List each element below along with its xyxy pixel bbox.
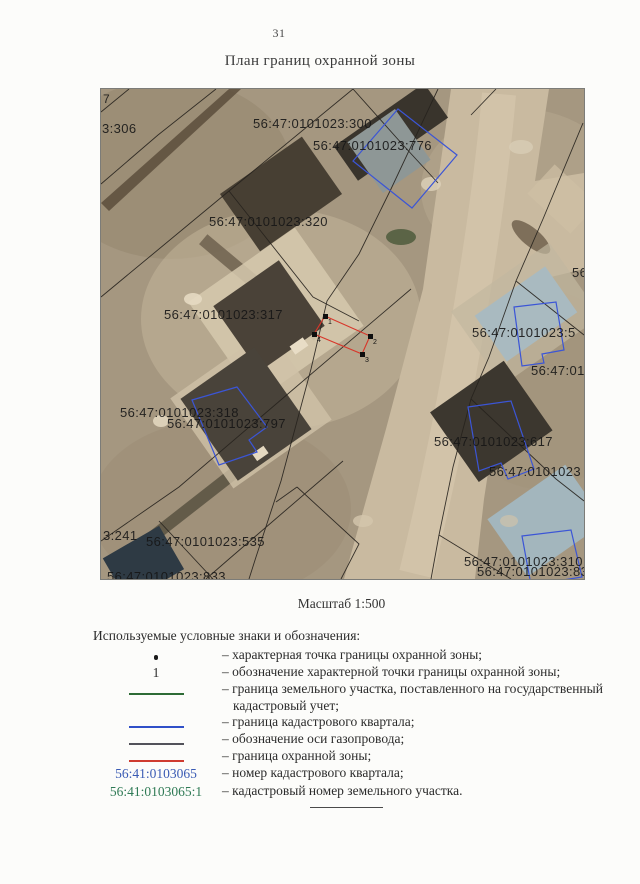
legend-row: – граница земельного участка, поставленн… [90, 681, 620, 714]
map-label: 56:47:0101023:833 [107, 570, 226, 580]
map-label: 3:306 [102, 122, 137, 135]
map-label: 56:47:0101023:617 [434, 435, 553, 448]
map-label: 56:47:01 [531, 364, 585, 377]
map-label: 56:47:0101023:320 [209, 215, 328, 228]
map-label: 56:47:0101023 [489, 465, 581, 478]
map-label: 56:47:0101023:5 [472, 326, 576, 339]
legend-cadastral-quarter-number: 56:41:0103065 [115, 766, 197, 783]
boundary-point-marker [368, 334, 373, 339]
legend-row-text: – кадастровый номер земельного участка. [222, 783, 620, 800]
map-image: 73:30656:47:0101023:30056:47:0101023:776… [100, 88, 585, 580]
map-label: 56:47:0101023:300 [253, 117, 372, 130]
legend-row: 56:41:0103065:1 – кадастровый номер земе… [90, 783, 620, 801]
map-label-layer: 73:30656:47:0101023:30056:47:0101023:776… [101, 89, 584, 579]
legend-row-text: – граница земельного участка, поставленн… [222, 681, 620, 714]
legend-row: – характерная точка границы охранной зон… [90, 647, 620, 664]
page-number: 31 [0, 26, 558, 41]
legend-row: – граница кадастрового квартала; [90, 714, 620, 731]
legend-row-text: – граница кадастрового квартала; [222, 714, 620, 731]
map-label: 56:47:0101023:317 [164, 308, 283, 321]
legend-cadastral-parcel-number: 56:41:0103065:1 [110, 784, 202, 801]
map-label: 56:47:0101023:776 [313, 139, 432, 152]
legend-row-text: – граница охранной зоны; [222, 748, 620, 765]
legend-header: Используемые условные знаки и обозначени… [93, 628, 620, 645]
legend: Используемые условные знаки и обозначени… [90, 628, 620, 800]
legend-line-swatch-blue [129, 726, 184, 728]
point-dot-symbol [154, 655, 159, 660]
scale-label: Масштаб 1:500 [100, 596, 583, 612]
map-label: 56:47:0101023:83 [477, 565, 585, 578]
point-number-label: 2 [373, 339, 377, 346]
point-number-symbol: 1 [153, 665, 160, 682]
divider-line [310, 807, 383, 808]
map-label: 56:47:0101023:797 [167, 417, 286, 430]
legend-row: 1 – обозначение характерной точки границ… [90, 664, 620, 682]
legend-row-text: – характерная точка границы охранной зон… [222, 647, 620, 664]
boundary-point-marker [360, 352, 365, 357]
page-title: План границ охранной зоны [0, 53, 640, 70]
map-label: 7 [103, 93, 110, 106]
legend-line-swatch-red [129, 760, 184, 762]
legend-line-swatch-gray [129, 743, 184, 745]
legend-row: 56:41:0103065 – номер кадастрового кварт… [90, 765, 620, 783]
point-number-label: 3 [365, 357, 369, 364]
boundary-point-marker [323, 314, 328, 319]
boundary-point-marker [312, 332, 317, 337]
legend-line-swatch-green [129, 693, 184, 695]
legend-row: – обозначение оси газопровода; [90, 731, 620, 748]
map-label: 56:47:0101023:535 [146, 535, 265, 548]
legend-row-text: – обозначение оси газопровода; [222, 731, 620, 748]
map-label: 3:241 [103, 529, 138, 542]
document-page: 31 План границ охранной зоны [0, 0, 640, 884]
point-number-label: 1 [328, 319, 332, 326]
point-number-label: 4 [317, 337, 321, 344]
legend-row: – граница охранной зоны; [90, 748, 620, 765]
legend-row-text: – обозначение характерной точки границы … [222, 664, 620, 681]
legend-row-text: – номер кадастрового квартала; [222, 765, 620, 782]
map-label: 56 [572, 266, 585, 279]
